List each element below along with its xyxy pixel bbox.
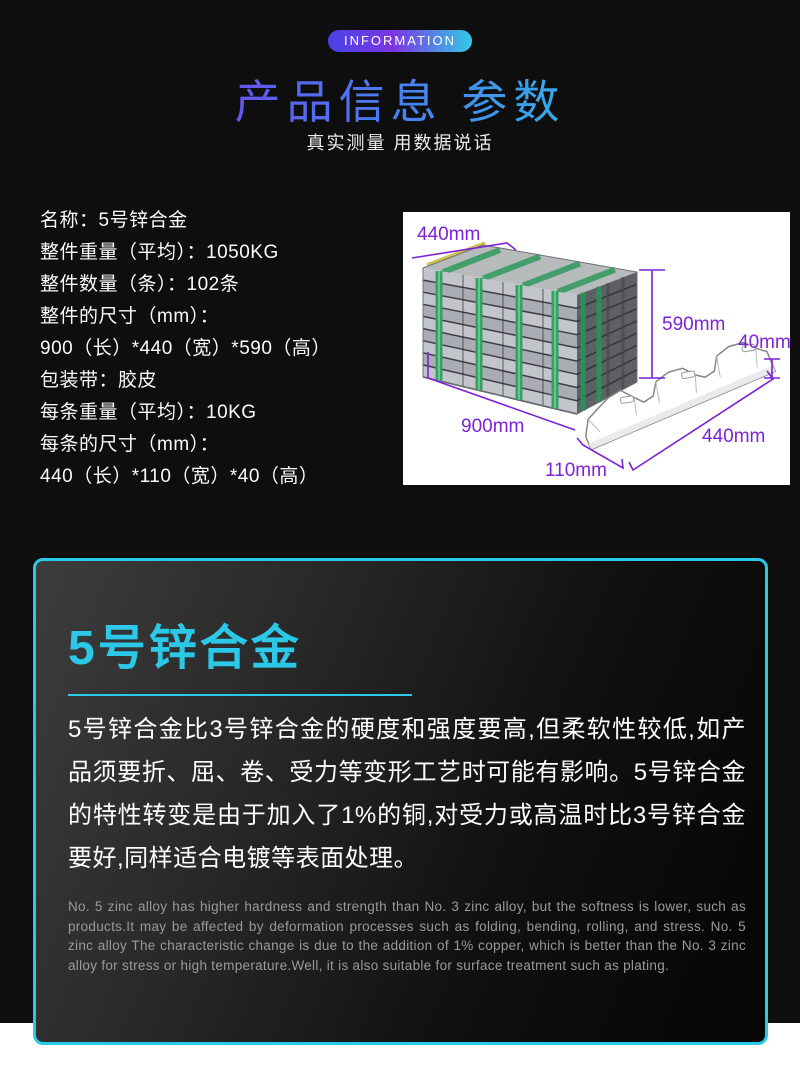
spec-line-pack-size-value: 900（长）*440（宽）*590（高）: [40, 333, 400, 365]
dim-bar-length-label: 440mm: [702, 426, 765, 447]
card-description-en: No. 5 zinc alloy has higher hardness and…: [68, 897, 746, 975]
dim-bar-height-label: 40mm: [738, 332, 790, 353]
dim-bar-width: 110mm: [545, 438, 623, 481]
spec-line-pack-weight: 整件重量（平均）：1050KG: [40, 237, 400, 269]
page-subtitle: 真实测量 用数据说话: [0, 129, 800, 155]
information-badge: INFORMATION: [328, 30, 472, 52]
dim-pack-height: 590mm: [639, 270, 725, 378]
spec-line-bar-size-value: 440（长）*110（宽）*40（高）: [40, 461, 400, 493]
spec-line-pack-count: 整件数量（条）：102条: [40, 269, 400, 301]
card-description-zh: 5号锌合金比3号锌合金的硬度和强度要高,但柔软性较低,如产品须要折、屈、卷、受力…: [68, 708, 746, 880]
page-title: 产品信息 参数: [0, 66, 800, 132]
spec-line-bar-weight: 每条重量（平均）：10KG: [40, 397, 400, 429]
alloy-info-card: 5号锌合金 5号锌合金比3号锌合金的硬度和强度要高,但柔软性较低,如产品须要折、…: [33, 558, 768, 1045]
spec-line-name: 名称：5号锌合金: [40, 205, 400, 237]
dim-pack-length-label: 900mm: [461, 416, 524, 437]
product-figure: 440mm 590mm 40mm 900mm 440mm 110mm: [403, 212, 790, 485]
card-heading: 5号锌合金: [68, 625, 737, 673]
dim-pack-height-label: 590mm: [662, 314, 725, 335]
dim-pack-width-label: 440mm: [417, 224, 480, 245]
card-divider: [68, 694, 412, 696]
dim-bar-width-label: 110mm: [545, 460, 607, 481]
product-info-page: INFORMATION 产品信息 参数 真实测量 用数据说话 名称：5号锌合金 …: [0, 0, 800, 1067]
product-figure-panel: 440mm 590mm 40mm 900mm 440mm 110mm: [403, 212, 790, 485]
spec-line-bar-size-label: 每条的尺寸（mm）：: [40, 429, 400, 461]
spec-line-strap: 包装带：胶皮: [40, 365, 400, 397]
spec-line-pack-size-label: 整件的尺寸（mm）：: [40, 301, 400, 333]
spec-list: 名称：5号锌合金 整件重量（平均）：1050KG 整件数量（条）：102条 整件…: [40, 205, 400, 493]
